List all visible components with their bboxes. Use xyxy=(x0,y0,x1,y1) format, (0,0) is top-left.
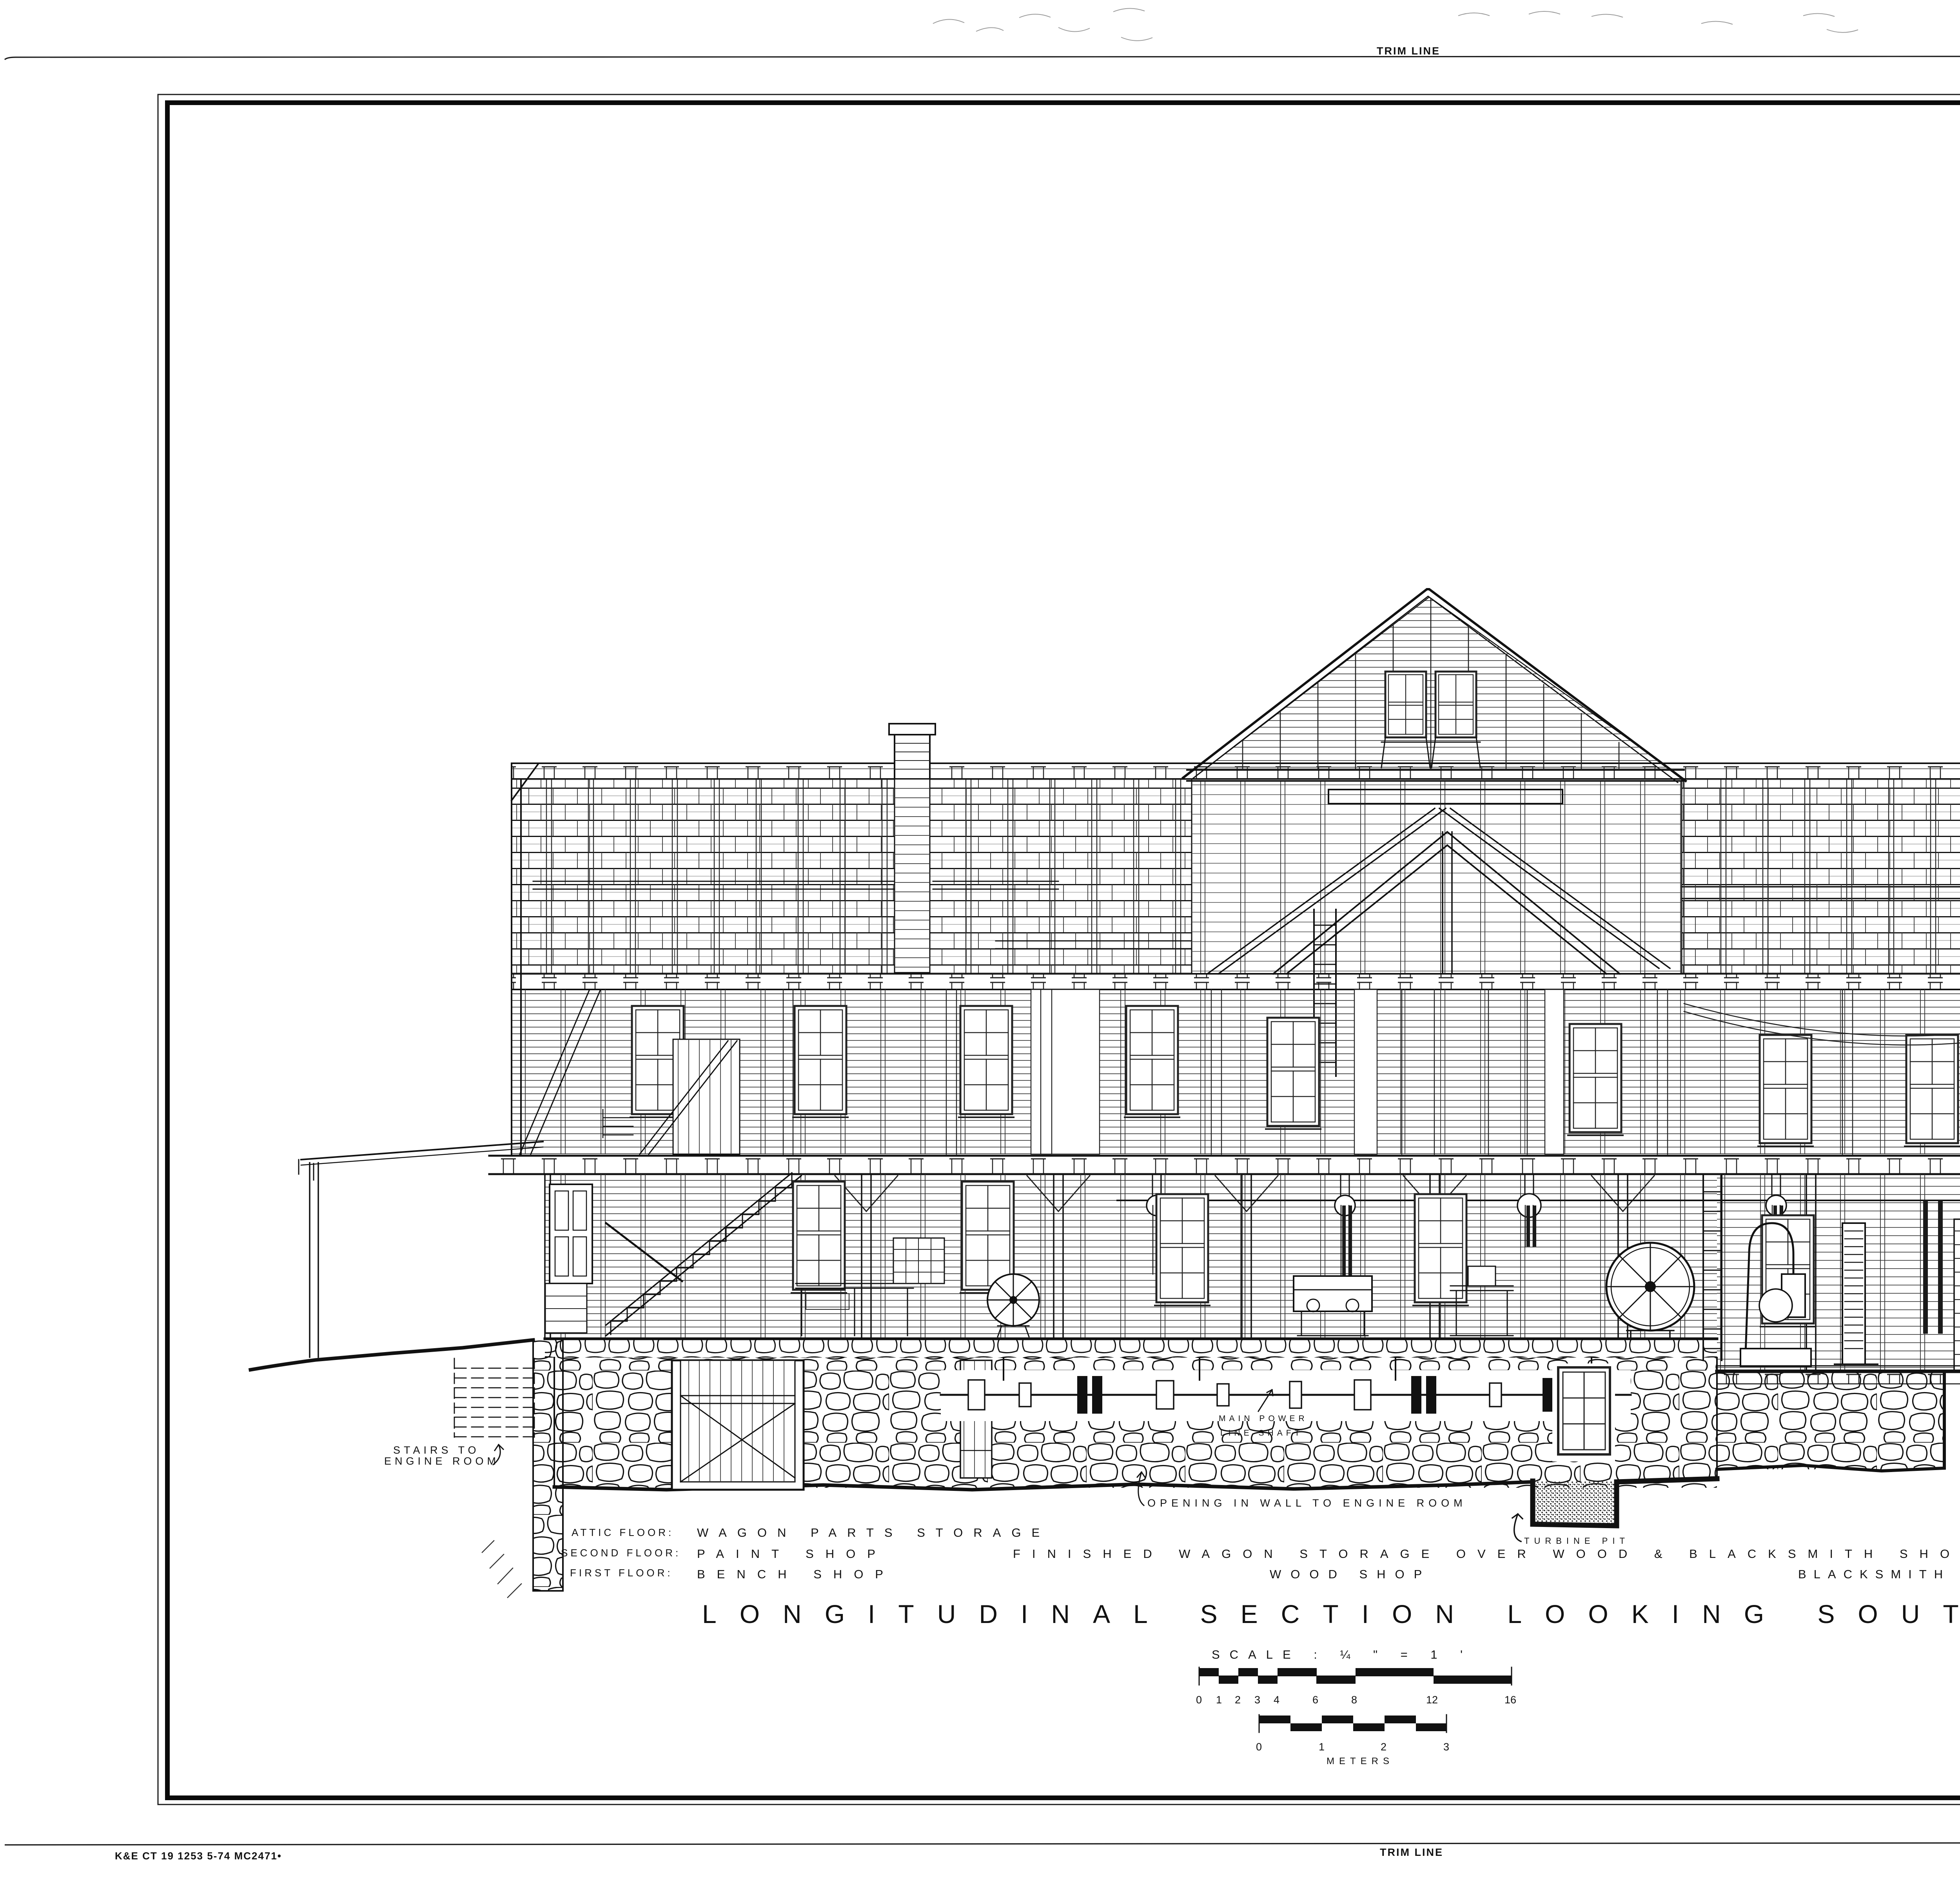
svg-text:1: 1 xyxy=(1319,1741,1325,1753)
svg-text:STAIRS TO: STAIRS TO xyxy=(393,1444,480,1456)
svg-text:LONGITUDINAL SECTION LOOKING: LONGITUDINAL SECTION LOOKING SOUTH xyxy=(702,1599,1960,1628)
svg-text:PAINT SHOP: PAINT SHOP xyxy=(697,1547,887,1561)
svg-text:FINISHED WAGON STORAGE OVER: FINISHED WAGON STORAGE OVER WOOD & BLACK… xyxy=(1013,1547,1960,1561)
svg-text:K&E CT 19 1253 5-74 MC2471•: K&E CT 19 1253 5-74 MC2471• xyxy=(115,1850,282,1862)
svg-text:TRIM LINE: TRIM LINE xyxy=(1380,1846,1443,1858)
svg-text:WAGON PARTS STORAGE: WAGON PARTS STORAGE xyxy=(697,1526,1050,1539)
svg-text:0: 0 xyxy=(1196,1694,1202,1706)
svg-text:ATTIC FLOOR:: ATTIC FLOOR: xyxy=(572,1527,674,1538)
svg-text:BENCH SHOP: BENCH SHOP xyxy=(697,1567,895,1581)
svg-text:WOOD SHOP: WOOD SHOP xyxy=(1270,1567,1431,1581)
svg-text:MAIN POWER: MAIN POWER xyxy=(1219,1414,1308,1423)
svg-text:ENGINE ROOM: ENGINE ROOM xyxy=(384,1455,499,1467)
svg-text:3: 3 xyxy=(1254,1694,1260,1706)
svg-text:METERS: METERS xyxy=(1327,1756,1394,1766)
svg-text:4: 4 xyxy=(1274,1694,1279,1706)
svg-text:TRIM LINE: TRIM LINE xyxy=(1377,45,1440,57)
svg-text:SCALE : ¼ " = 1 ': SCALE : ¼ " = 1 ' xyxy=(1212,1648,1472,1661)
svg-text:12: 12 xyxy=(1426,1694,1438,1706)
svg-text:8: 8 xyxy=(1351,1694,1357,1706)
svg-text:6: 6 xyxy=(1312,1694,1318,1706)
svg-text:1: 1 xyxy=(1216,1694,1222,1706)
svg-text:FIRST FLOOR:: FIRST FLOOR: xyxy=(570,1567,673,1579)
svg-text:BLACKSMITH SHOP: BLACKSMITH SHOP xyxy=(1798,1567,1960,1581)
svg-text:LINE SHAFT: LINE SHAFT xyxy=(1220,1429,1303,1438)
svg-text:3: 3 xyxy=(1443,1741,1449,1753)
svg-text:2: 2 xyxy=(1235,1694,1241,1706)
svg-text:TURBINE PIT: TURBINE PIT xyxy=(1524,1536,1630,1546)
svg-text:OPENING IN WALL TO ENGINE ROOM: OPENING IN WALL TO ENGINE ROOM xyxy=(1147,1497,1467,1509)
svg-text:0: 0 xyxy=(1256,1741,1262,1753)
svg-text:16: 16 xyxy=(1504,1694,1516,1706)
svg-text:2: 2 xyxy=(1381,1741,1387,1753)
svg-text:SECOND FLOOR:: SECOND FLOOR: xyxy=(561,1547,681,1559)
